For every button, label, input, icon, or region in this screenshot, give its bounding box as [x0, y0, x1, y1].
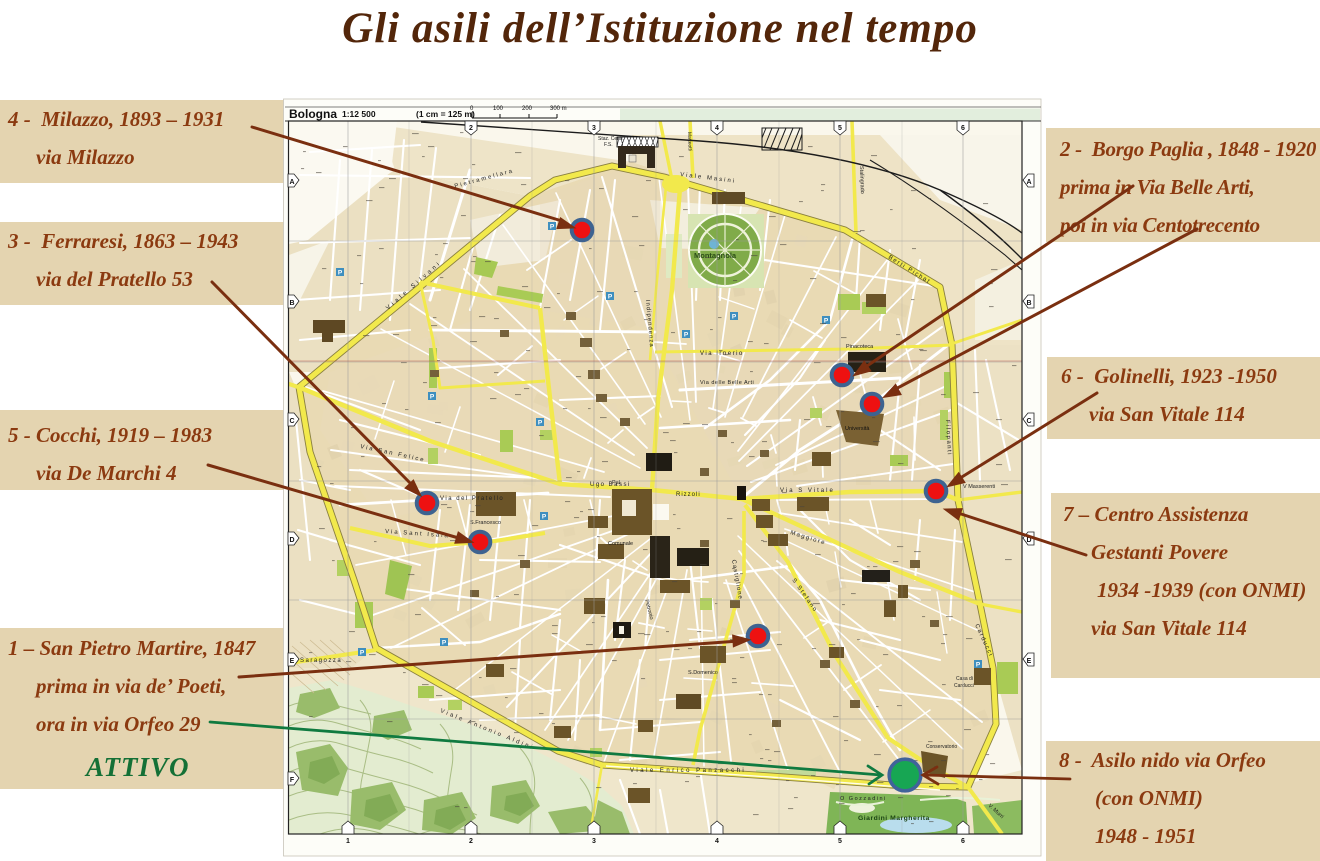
- svg-text:Università: Università: [845, 426, 870, 432]
- svg-text:3: 3: [592, 125, 596, 132]
- svg-text:1: 1: [346, 838, 350, 845]
- svg-text:1:12 500: 1:12 500: [342, 109, 376, 119]
- svg-text:5: 5: [838, 838, 842, 845]
- svg-text:P: P: [442, 640, 447, 647]
- svg-text:P: P: [360, 650, 365, 657]
- svg-text:P: P: [976, 662, 981, 669]
- svg-text:P: P: [608, 294, 613, 301]
- svg-text:V Masserenti: V Masserenti: [963, 484, 995, 490]
- svg-text:Carducci: Carducci: [954, 683, 974, 689]
- svg-text:Saragozza: Saragozza: [300, 658, 342, 664]
- svg-text:F.S.: F.S.: [604, 142, 613, 148]
- svg-text:4: 4: [715, 838, 719, 845]
- svg-text:P: P: [550, 224, 555, 231]
- svg-text:S.Francesco: S.Francesco: [470, 520, 501, 526]
- svg-text:Ugo Bassi: Ugo Bassi: [590, 482, 631, 488]
- svg-text:Comunale: Comunale: [608, 541, 633, 547]
- svg-text:B: B: [1026, 300, 1031, 307]
- svg-text:Viale Enrico Panzacchi: Viale Enrico Panzacchi: [630, 768, 746, 774]
- svg-text:P: P: [732, 314, 737, 321]
- svg-text:O Gozzadini: O Gozzadini: [840, 796, 887, 802]
- svg-text:P: P: [430, 394, 435, 401]
- svg-text:P: P: [684, 332, 689, 339]
- svg-text:Rizzoli: Rizzoli: [676, 492, 701, 498]
- svg-text:A: A: [289, 179, 294, 186]
- svg-text:2: 2: [469, 125, 473, 132]
- svg-text:P: P: [542, 514, 547, 521]
- svg-text:4: 4: [715, 125, 719, 132]
- svg-text:Giardini Margherita: Giardini Margherita: [858, 815, 930, 822]
- svg-text:E: E: [1027, 658, 1032, 665]
- svg-text:100: 100: [493, 106, 504, 112]
- svg-text:Matteotti: Matteotti: [686, 132, 693, 151]
- svg-text:Stalingrado: Stalingrado: [858, 166, 865, 194]
- svg-text:A: A: [1026, 179, 1031, 186]
- svg-text:3: 3: [592, 838, 596, 845]
- svg-text:6: 6: [961, 838, 965, 845]
- svg-text:B: B: [289, 300, 294, 307]
- svg-text:Conservatorio: Conservatorio: [926, 744, 957, 750]
- svg-text:Bologna: Bologna: [289, 107, 337, 121]
- svg-text:F: F: [290, 777, 295, 784]
- svg-text:Pinacoteca: Pinacoteca: [846, 344, 874, 350]
- svg-text:(1 cm = 125 m): (1 cm = 125 m): [416, 109, 475, 119]
- svg-text:E: E: [290, 658, 295, 665]
- svg-text:2: 2: [469, 838, 473, 845]
- svg-text:C: C: [1026, 418, 1031, 425]
- svg-text:Via S Vitale: Via S Vitale: [780, 488, 835, 494]
- svg-text:Via Irnerio: Via Irnerio: [700, 351, 744, 357]
- svg-text:P: P: [538, 420, 543, 427]
- svg-text:D: D: [289, 537, 294, 544]
- svg-text:Casa di: Casa di: [956, 676, 973, 682]
- svg-text:5: 5: [838, 125, 842, 132]
- svg-text:Via delle Belle Arti: Via delle Belle Arti: [700, 380, 754, 386]
- svg-text:Montagnola: Montagnola: [694, 251, 737, 260]
- svg-text:6: 6: [961, 125, 965, 132]
- svg-text:C: C: [289, 418, 294, 425]
- svg-text:300 m: 300 m: [550, 106, 567, 112]
- svg-text:S.Domenico: S.Domenico: [688, 670, 718, 676]
- svg-text:200: 200: [522, 106, 533, 112]
- svg-text:Via del Pratello: Via del Pratello: [440, 496, 504, 502]
- svg-text:P: P: [338, 270, 343, 277]
